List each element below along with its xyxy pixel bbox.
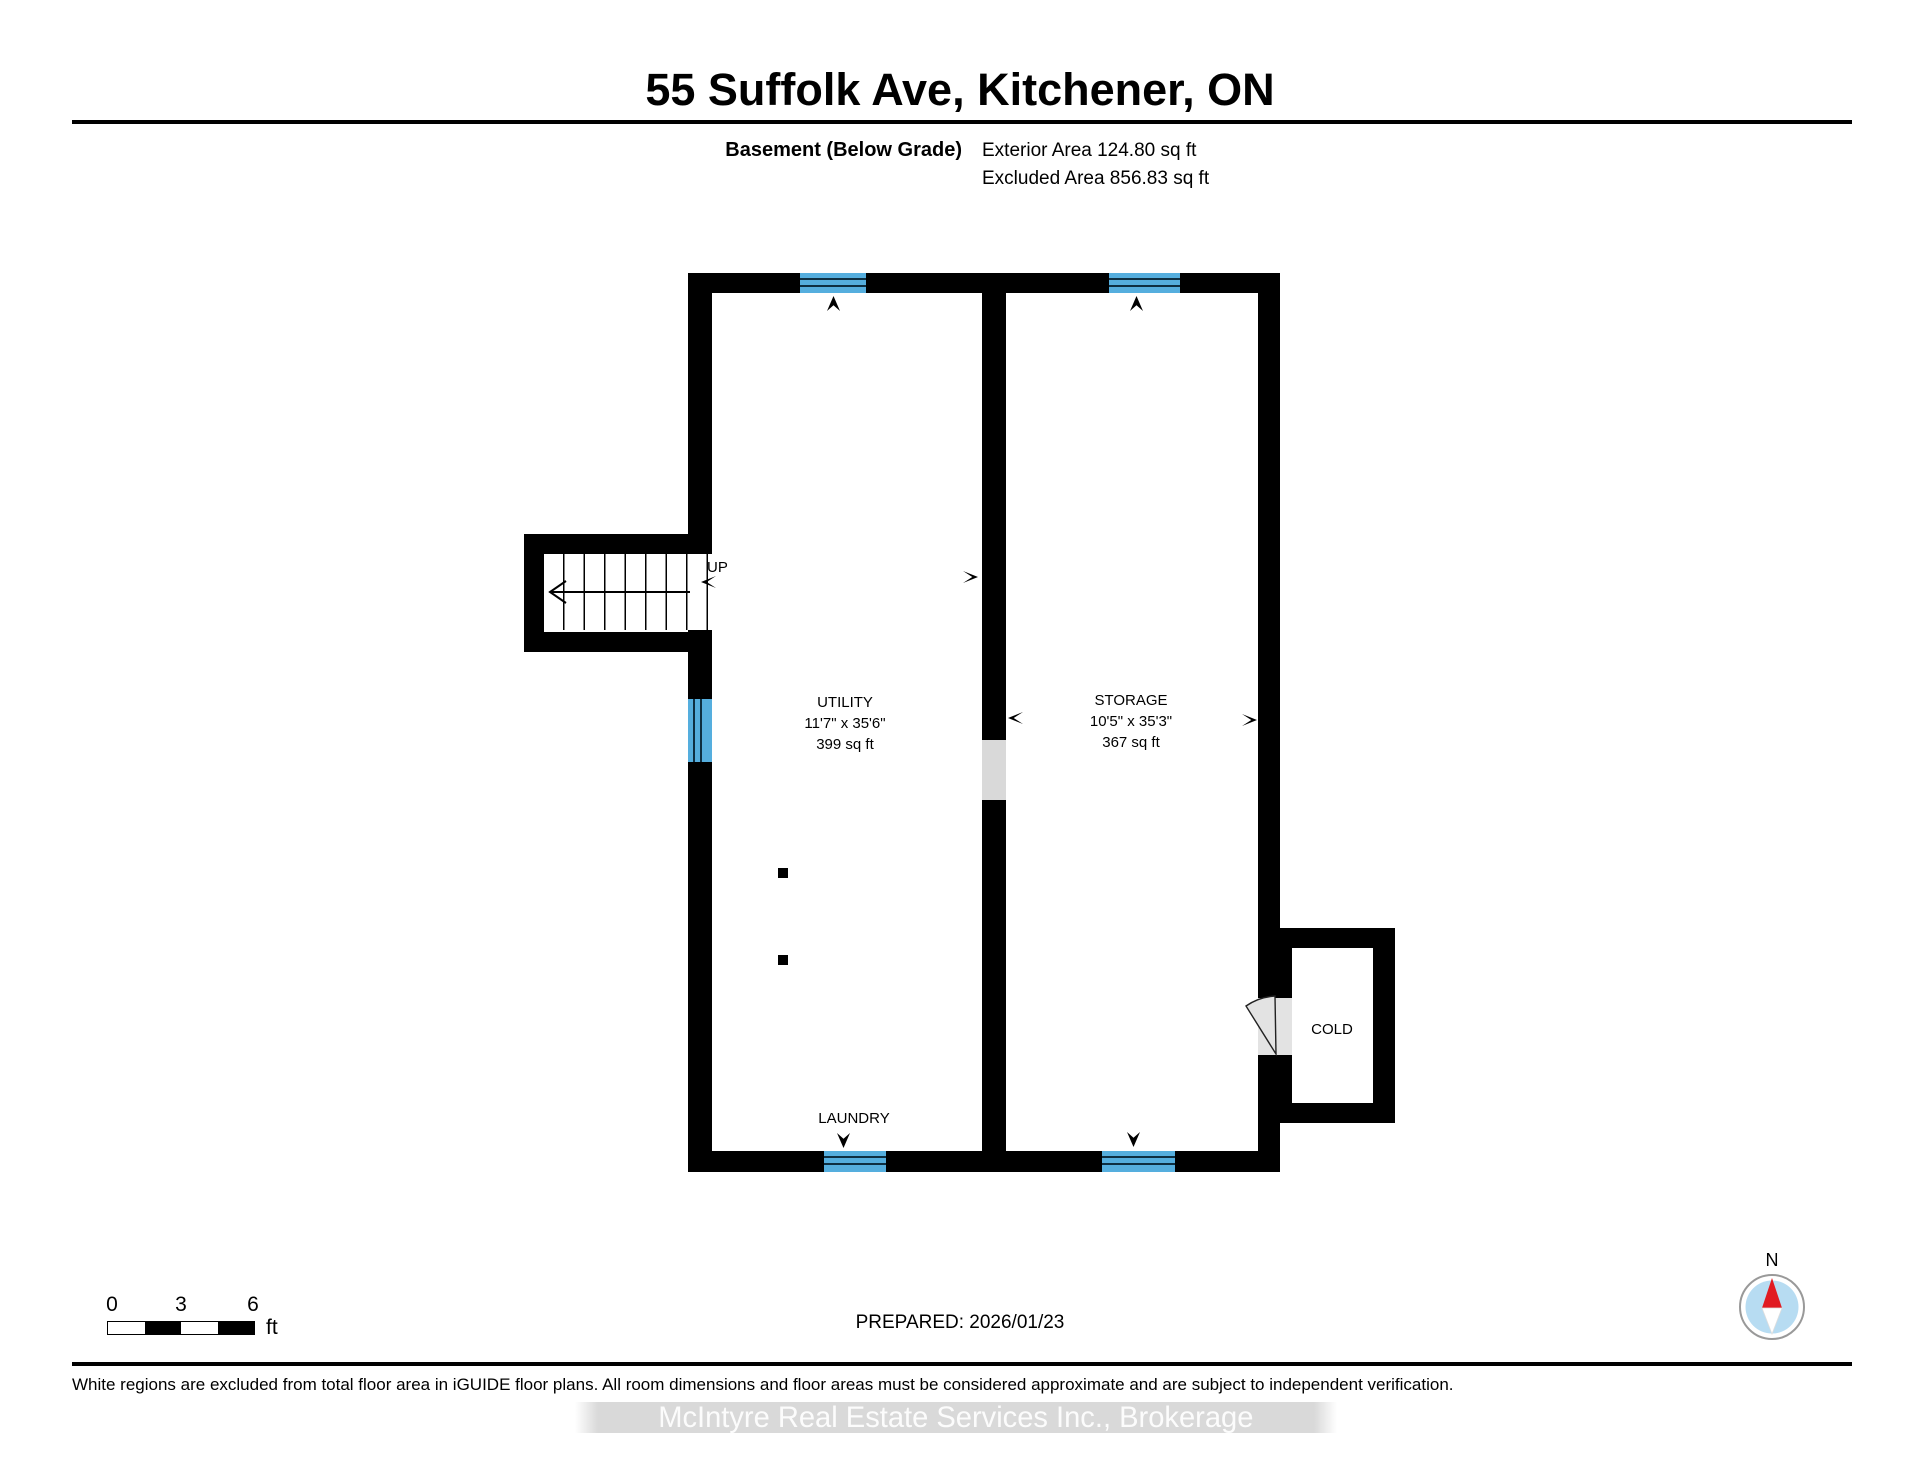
window <box>688 699 712 762</box>
measure-arrow-icon <box>1008 712 1023 724</box>
measure-arrow-icon <box>963 571 978 583</box>
support-post <box>778 955 788 965</box>
room-label-utility: UTILITY 11'7" x 35'6" 399 sq ft <box>804 692 885 755</box>
window <box>1102 1151 1175 1172</box>
interior-wall-segment <box>982 800 1006 1151</box>
stairs-up-label: UP <box>707 559 728 576</box>
room-area: 367 sq ft <box>1090 732 1172 753</box>
measure-arrow-icon <box>1242 714 1257 726</box>
room-label-cold: COLD <box>1311 1019 1353 1040</box>
room-dimensions: 11'7" x 35'6" <box>804 713 885 734</box>
floor-plan-page: 55 Suffolk Ave, Kitchener, ON Basement (… <box>0 0 1920 1484</box>
brokerage-watermark: McIntyre Real Estate Services Inc., Brok… <box>575 1402 1337 1433</box>
room-label-laundry: LAUNDRY <box>818 1108 889 1129</box>
window <box>824 1151 886 1172</box>
cold-room-wall-segment <box>1373 928 1395 1123</box>
compass-north-label: N <box>1766 1250 1779 1270</box>
wall-segment <box>1258 273 1280 928</box>
room-name: UTILITY <box>804 692 885 713</box>
stairwell-wall-segment <box>524 632 688 652</box>
prepared-date: PREPARED: 2026/01/23 <box>0 1312 1920 1334</box>
room-dimensions: 10'5" x 35'3" <box>1090 711 1172 732</box>
wall-segment <box>688 273 1280 293</box>
disclaimer-text: White regions are excluded from total fl… <box>72 1375 1454 1395</box>
stairwell-wall-segment <box>524 534 688 554</box>
brokerage-watermark-text: McIntyre Real Estate Services Inc., Brok… <box>658 1401 1253 1435</box>
room-name: COLD <box>1311 1019 1353 1040</box>
window-direction-arrow-icon <box>1127 1132 1140 1147</box>
window-direction-arrow-icon <box>1130 296 1143 311</box>
wall-opening <box>982 740 1006 800</box>
room-name: LAUNDRY <box>818 1108 889 1129</box>
wall-segment <box>688 1151 1280 1172</box>
window-direction-arrow-icon <box>827 296 840 311</box>
cold-room-wall-segment <box>1258 1103 1395 1123</box>
interior-wall-segment <box>982 293 1006 740</box>
window <box>1109 273 1180 293</box>
door-swing-icon <box>1236 993 1294 1057</box>
compass-icon: N <box>1737 1248 1811 1344</box>
wall-segment <box>688 273 712 554</box>
footer-divider <box>72 1362 1852 1366</box>
window-direction-arrow-icon <box>837 1133 850 1148</box>
window <box>800 273 866 293</box>
room-label-storage: STORAGE 10'5" x 35'3" 367 sq ft <box>1090 690 1172 753</box>
support-post <box>778 868 788 878</box>
room-name: STORAGE <box>1090 690 1172 711</box>
stair-direction-arrow <box>544 554 712 630</box>
floor-plan-drawing: UP UTILITY 11'7" x 35'6" 399 sq ft STORA… <box>0 0 1920 1484</box>
room-area: 399 sq ft <box>804 734 885 755</box>
